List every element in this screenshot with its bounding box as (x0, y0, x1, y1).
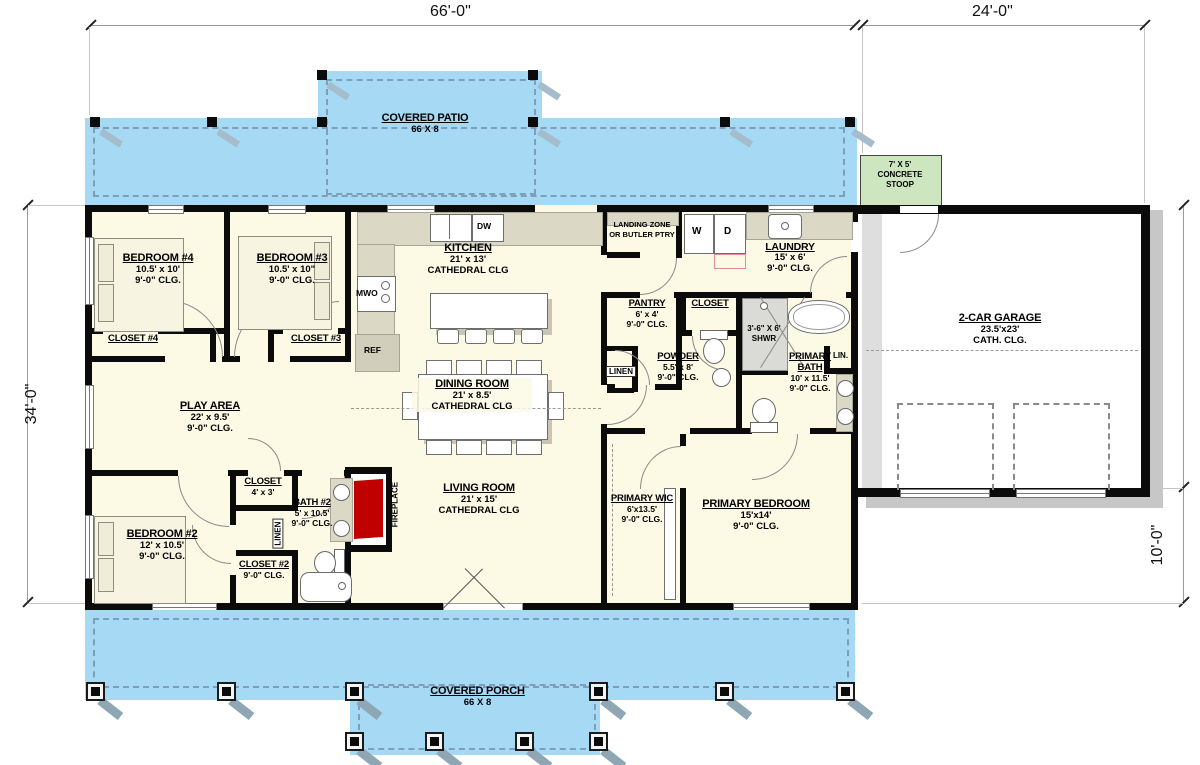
wall-pantry-bottom (655, 384, 682, 390)
dining-chair (486, 440, 512, 455)
garage-name: 2-CAR GARAGE (930, 312, 1070, 325)
garage-wall-shade (862, 214, 882, 488)
patio-post (845, 117, 855, 127)
extension-line (28, 603, 85, 604)
lin-closet-label: LIN. (830, 351, 851, 360)
sink-drain (781, 222, 789, 230)
dishwasher-label: DW (477, 221, 491, 231)
garage-parking-outline (897, 403, 994, 490)
dining-chair (516, 440, 542, 455)
extension-line (28, 205, 85, 206)
window (148, 205, 184, 214)
garage-wall-right (1141, 205, 1150, 497)
island-stool (465, 329, 487, 344)
kitchen-label: KITCHEN 21' x 13' CATHEDRAL CLG (408, 242, 528, 276)
bed-pillow (98, 558, 114, 592)
landing-zone-label: LANDING ZONE OR BUTLER PTRY (608, 220, 676, 240)
island-stool (521, 329, 543, 344)
porch-post (345, 682, 364, 701)
kitchen-sink-divider (449, 215, 450, 239)
toilet-bowl (752, 398, 776, 424)
patio-post (528, 70, 538, 80)
garage-entry-opening (900, 206, 938, 213)
extension-line (89, 27, 90, 115)
patio-post (720, 117, 730, 127)
patio-post (207, 117, 217, 127)
dimension-line-right (1183, 205, 1184, 603)
laundry-label: LAUNDRY 15' x 6' 9'-0" CLG. (740, 241, 840, 275)
fireplace-firebox (354, 479, 383, 539)
porch-post (836, 682, 855, 701)
wall-primary-top (690, 428, 752, 434)
pantry-label: PANTRY 6' x 4' 9'-0" CLG. (608, 299, 686, 329)
dryer-label: D (724, 226, 731, 237)
porch-post (425, 732, 444, 751)
mwo-knob (381, 294, 390, 303)
hall-closet-label: CLOSET (684, 299, 736, 310)
patio-post (317, 70, 327, 80)
patio-post (528, 117, 538, 127)
dining-chair (486, 360, 512, 375)
dim-right-depth: 10'-0" (1149, 505, 1167, 585)
window (85, 385, 94, 449)
porch-post (589, 732, 608, 751)
stoop-material: CONCRETE (860, 170, 940, 180)
linen2-label: LINEN (272, 506, 283, 562)
primary-wic-label: PRIMARY WIC 6'x13.5' 9'-0" CLG. (601, 494, 683, 524)
dim-garage-width: 24'-0" (972, 3, 1013, 21)
porch-size: 66 X 8 (405, 698, 550, 709)
porch-post (589, 682, 608, 701)
dimension-line-top-right (862, 25, 1145, 26)
garage-ceiling-break-line (866, 350, 1138, 351)
closet3-label: CLOSET #3 (276, 334, 356, 345)
garage-parking-outline (1013, 403, 1110, 490)
fireplace-name: FIREPLACE (390, 460, 399, 550)
stoop-type: STOOP (860, 180, 940, 190)
wall (236, 550, 298, 556)
closet2-label: CLOSET #2 9'-0" CLG. (224, 560, 304, 581)
tub-drain (338, 582, 346, 590)
island-stool (437, 329, 459, 344)
dim-tick (1178, 199, 1189, 210)
wall-primary-top (601, 428, 645, 434)
wall (92, 356, 165, 362)
dim-top-width: 66'-0" (430, 3, 471, 21)
garage-door (1016, 489, 1106, 498)
window (85, 237, 94, 305)
bed-pillow (98, 284, 114, 322)
living-label: LIVING ROOM 21' x 15' CATHEDRAL CLG (419, 482, 539, 516)
fireplace-label: FIREPLACE (390, 460, 399, 550)
dining-chair (426, 440, 452, 455)
porch-post (515, 732, 534, 751)
primary-bedroom-label: PRIMARY BEDROOM 15'x14' 9'-0" CLG. (696, 498, 816, 532)
shower-head (760, 302, 768, 310)
dining-label: DINING ROOM 21' x 8.5' CATHEDRAL CLG (412, 378, 532, 412)
shower-label: 3'-6" X 6' SHWR (740, 324, 788, 345)
bed-pillow (314, 282, 330, 320)
kitchen-island (430, 293, 548, 329)
floor-plan: 66'-0" 24'-0" 34'-0" 24'-0" 10'-0" COVER… (0, 0, 1200, 765)
extension-line (862, 603, 1183, 604)
primary-sink (837, 408, 854, 425)
linen-label: LINEN (606, 366, 636, 377)
dining-chair (456, 440, 482, 455)
kitchen-sink (430, 214, 472, 242)
window (268, 205, 306, 214)
window (85, 515, 94, 579)
porch-name: COVERED PORCH (405, 685, 550, 698)
bedroom2-label: BEDROOM #2 12' x 10.5' 9'-0" CLG. (102, 528, 222, 562)
garage-door (900, 489, 990, 498)
garage-shadow (1150, 210, 1163, 508)
wall-closet (680, 330, 692, 336)
dim-tick (1178, 481, 1189, 492)
porch-dashed-line (93, 618, 849, 688)
porch-post (217, 682, 236, 701)
play-area-label: PLAY AREA 22' x 9.5' 9'-0" CLG. (150, 400, 270, 434)
patio-name: COVERED PATIO (355, 112, 495, 125)
porch-post (345, 732, 364, 751)
porch-post (86, 682, 105, 701)
closet-4x3-label: CLOSET 4' x 3' (223, 477, 303, 498)
patio-door-opening (535, 205, 597, 212)
island-stool (493, 329, 515, 344)
extension-line (1144, 27, 1145, 203)
washer-label: W (692, 226, 701, 237)
ref-label: REF (364, 345, 381, 355)
wall-bed4-bed3 (224, 212, 230, 360)
patio-label: COVERED PATIO 66 X 8 (355, 112, 495, 136)
stoop-label: 7' X 5' CONCRETE STOOP (860, 160, 940, 190)
garage-shadow (866, 497, 1163, 508)
bedroom3-label: BEDROOM #3 10.5' x 10" 9'-0" CLG. (232, 252, 352, 286)
dim-left-height: 34'-0" (23, 364, 41, 444)
wall-bed2-top (92, 470, 178, 476)
wall (290, 356, 351, 362)
tub-inner (793, 304, 845, 330)
porch-label: COVERED PORCH 66 X 8 (405, 685, 550, 709)
patio-post (90, 117, 100, 127)
bedroom4-label: BEDROOM #4 10.5' x 10' 9'-0" CLG. (98, 252, 218, 286)
dimension-line-top (90, 25, 855, 26)
powder-label: POWDER 5.5' x 8' 9'-0" CLG. (640, 352, 716, 382)
dining-chair (516, 360, 542, 375)
patio-post (317, 117, 327, 127)
wall-wic-right (680, 434, 686, 446)
patio-size: 66 X 8 (355, 125, 495, 136)
garage-clg: CATH. CLG. (930, 336, 1070, 347)
porch-post (715, 682, 734, 701)
patio-dashed-line (326, 79, 536, 195)
bath2-label: BATH #2 5' x 10.5' 9'-0" CLG. (272, 498, 352, 528)
mwo-knob (381, 281, 390, 290)
dim-tick (1178, 596, 1189, 607)
toilet-tank (750, 422, 778, 433)
wall-powder-bath (736, 375, 742, 430)
house-wall-top (85, 205, 858, 212)
wall-landing (607, 252, 640, 258)
dining-chair (456, 360, 482, 375)
closet4-label: CLOSET #4 (93, 334, 173, 345)
dim-tick (22, 596, 33, 607)
garage-label: 2-CAR GARAGE 23.5'x23' CATH. CLG. (930, 312, 1070, 346)
garage-dims: 23.5'x23' (930, 325, 1070, 336)
dining-chair (426, 360, 452, 375)
mwo-label: MWO (356, 288, 378, 298)
dining-chair (548, 392, 564, 420)
stoop-size: 7' X 5' (860, 160, 940, 170)
